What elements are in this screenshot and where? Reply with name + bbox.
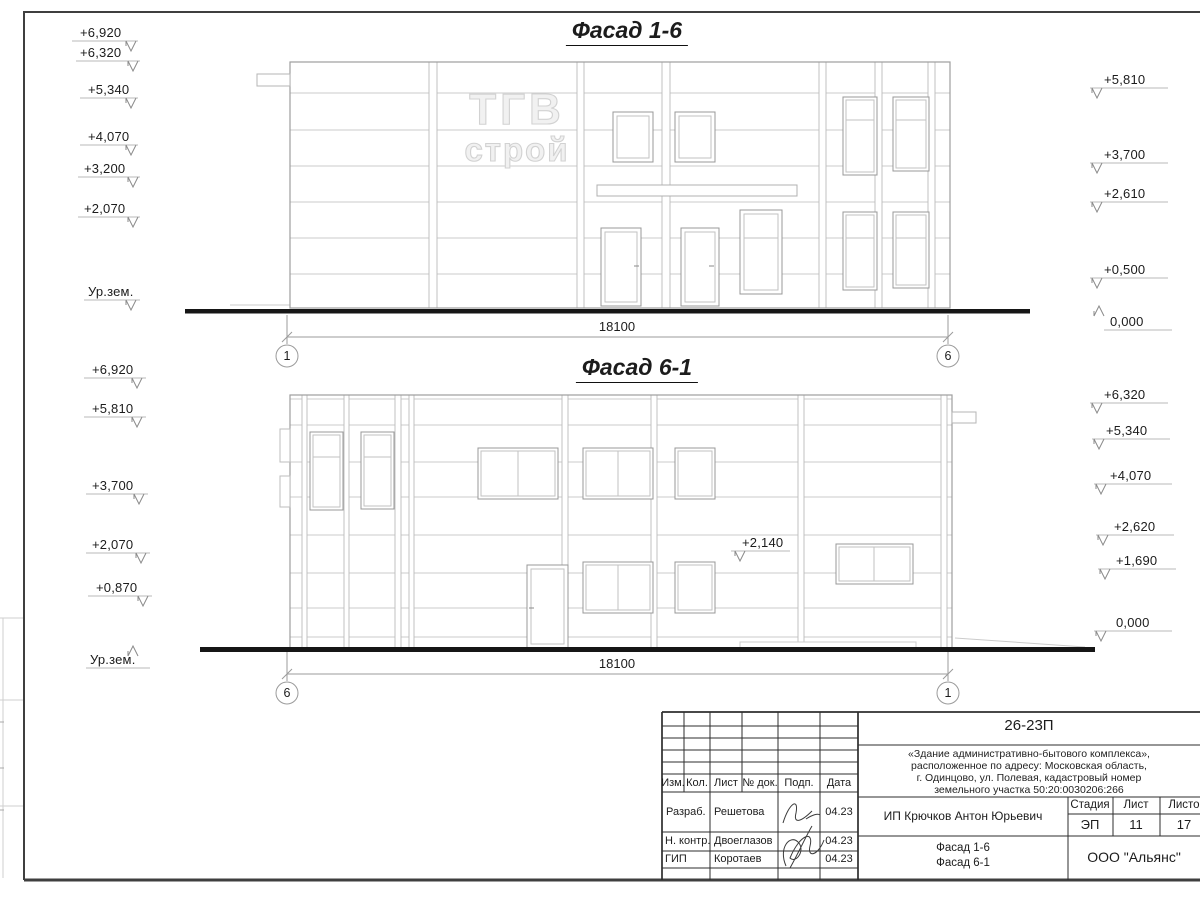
elevation-mark-label: +3,700 — [1104, 148, 1145, 161]
project-description-line: г. Одинцово, ул. Полевая, кадастровый но… — [917, 773, 1142, 784]
column-header-list: Лист — [714, 778, 738, 789]
project-description-line: земельного участка 50:20:0030206:266 — [934, 785, 1124, 796]
project-description-line: расположенное по адресу: Московская обла… — [911, 761, 1147, 772]
signature-name: Решетова — [714, 807, 764, 818]
dimension-value: 18100 — [599, 320, 635, 333]
signature-date: 04.23 — [825, 854, 853, 865]
elevation-mark-label: +4,070 — [1110, 469, 1151, 482]
elevation-mark-label: +6,920 — [80, 26, 121, 39]
stage-value: ЭП — [1081, 818, 1100, 831]
elevation-mark-label: +5,810 — [1104, 73, 1145, 86]
column-header-podp: Подп. — [784, 778, 813, 789]
signature-date: 04.23 — [825, 836, 853, 847]
axis-bubble: 1 — [945, 687, 952, 700]
elevation-mark-label: +3,700 — [92, 479, 133, 492]
elevation-mark-label: +3,200 — [84, 162, 125, 175]
project-number: 26-23П — [1004, 718, 1053, 733]
facade-1-6-title: Фасад 1-6 — [566, 19, 688, 46]
elevation-mark-label: +6,320 — [1104, 388, 1145, 401]
sheet-number: 11 — [1129, 818, 1143, 831]
facade-6-1-title: Фасад 6-1 — [576, 356, 698, 383]
elevation-mark-label: 0,000 — [1116, 616, 1150, 629]
elevation-mark-label: +5,340 — [1106, 424, 1147, 437]
axis-bubble: 6 — [284, 687, 291, 700]
elevation-annotation: +2,140 — [742, 536, 783, 549]
elevation-mark-label: +6,320 — [80, 46, 121, 59]
elevation-mark-label: +0,870 — [96, 581, 137, 594]
elevation-mark-label: 0,000 — [1110, 315, 1144, 328]
drawing-sheet: { "facade1": { "title": "Фасад 1-6", "di… — [0, 0, 1200, 900]
elevation-mark-label: +4,070 — [88, 130, 129, 143]
elevation-mark-label: Ур.зем. — [88, 285, 134, 298]
column-header-izm: Изм. — [661, 778, 685, 789]
building-sign-line2: строй — [464, 133, 569, 166]
drawing-title-line2: Фасад 6-1 — [936, 858, 990, 870]
elevation-mark-label: +1,690 — [1116, 554, 1157, 567]
drawing-title-line1: Фасад 1-6 — [936, 843, 990, 855]
stage-label: Стадия — [1070, 800, 1109, 812]
elevation-mark-label: +2,610 — [1104, 187, 1145, 200]
signature-scribbles — [783, 804, 824, 868]
signature-role: ГИП — [665, 854, 687, 865]
sheets-total: 17 — [1177, 818, 1191, 831]
elevation-mark-label: +2,070 — [92, 538, 133, 551]
elevation-mark-label: +2,070 — [84, 202, 125, 215]
sheets-label: Листов — [1168, 800, 1200, 812]
elevation-mark-label: Ур.зем. — [90, 653, 136, 666]
axis-bubble: 6 — [945, 350, 952, 363]
elevation-mark-label: +5,340 — [88, 83, 129, 96]
elevation-mark-label: +6,920 — [92, 363, 133, 376]
client-name: ИП Крючков Антон Юрьевич — [884, 810, 1043, 822]
company-name: ООО "Альянс" — [1087, 850, 1181, 864]
signature-name: Коротаев — [714, 854, 762, 865]
elevation-mark-label: +0,500 — [1104, 263, 1145, 276]
dimension-value: 18100 — [599, 657, 635, 670]
signature-role: Разраб. — [666, 807, 706, 818]
signature-role: Н. контр. — [665, 836, 710, 847]
signature-name: Двоеглазов — [714, 836, 772, 847]
building-sign-line1: ТГВ — [469, 88, 565, 132]
column-header-data: Дата — [827, 778, 851, 789]
project-description-line: «Здание административно-бытового комплек… — [908, 749, 1150, 760]
column-header-kol: Кол. — [686, 778, 708, 789]
column-header-doc: № док. — [742, 778, 777, 789]
elevation-mark-label: +2,620 — [1114, 520, 1155, 533]
axis-bubble: 1 — [284, 350, 291, 363]
signature-date: 04.23 — [825, 807, 853, 818]
sheet-label: Лист — [1124, 800, 1149, 812]
elevation-mark-label: +5,810 — [92, 402, 133, 415]
